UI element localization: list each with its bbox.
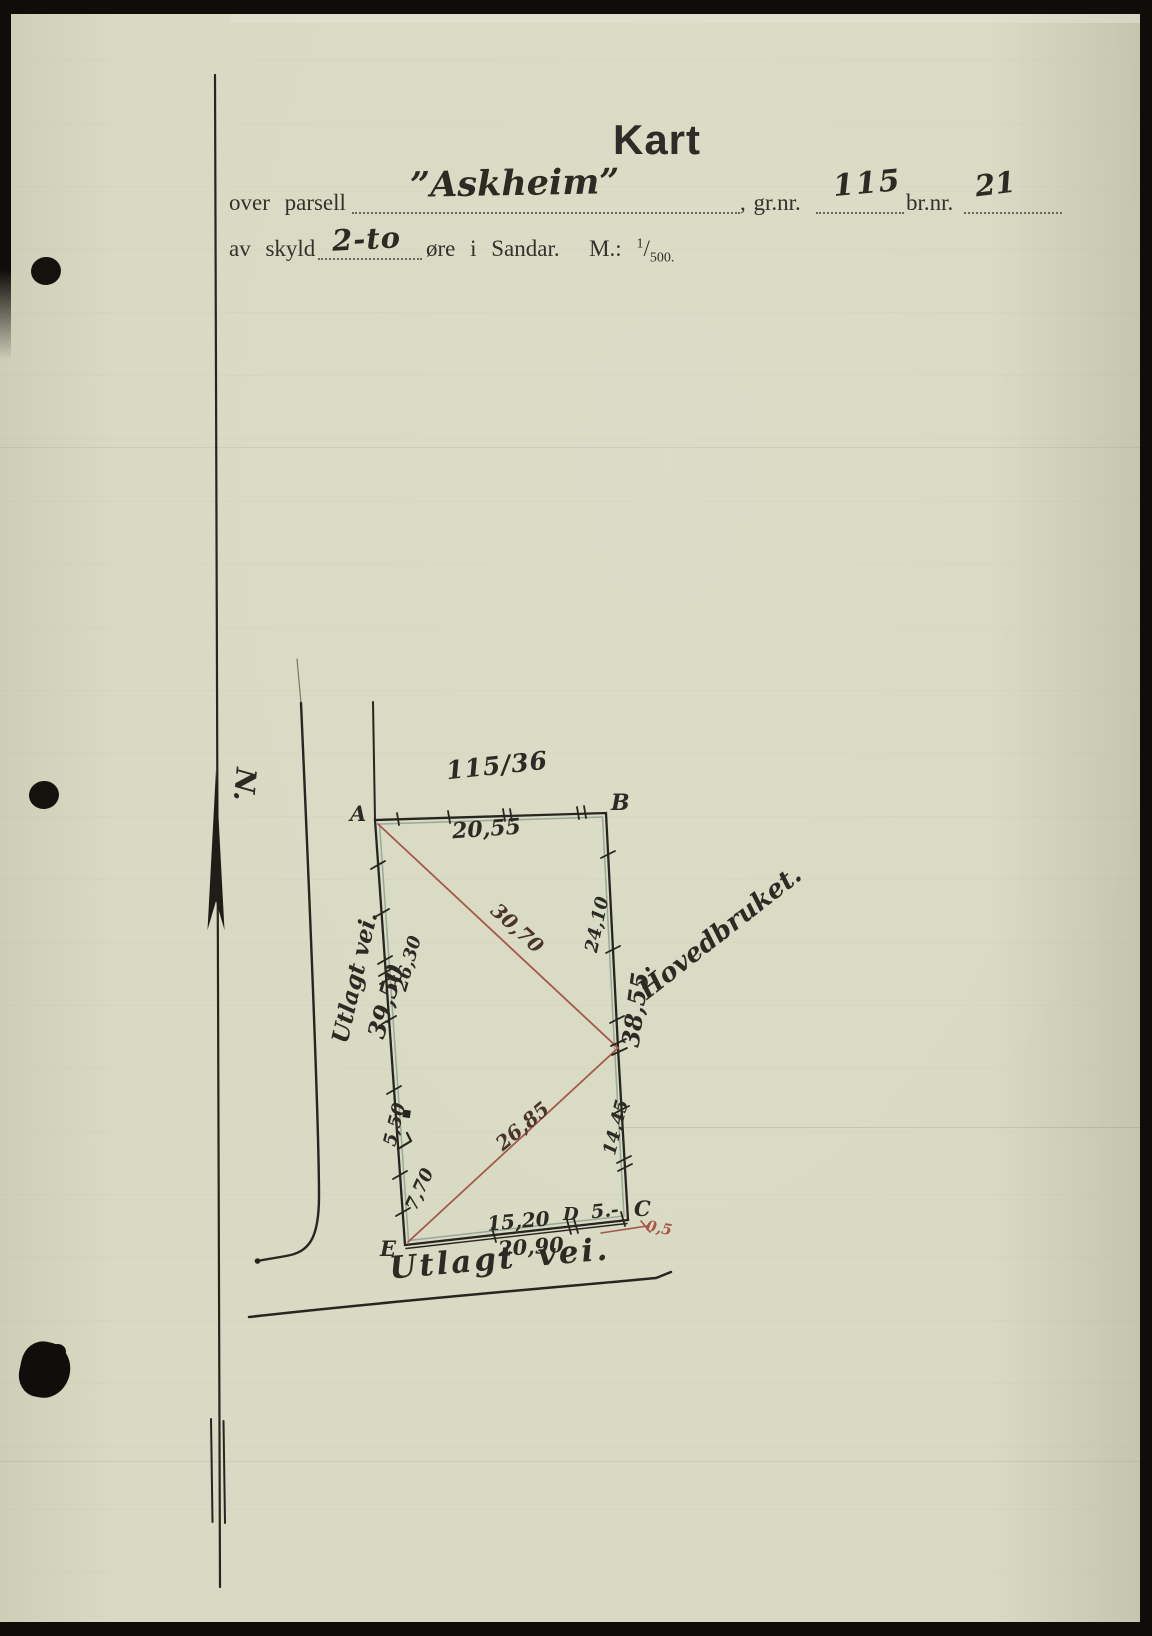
point-label-d: D	[563, 1204, 579, 1225]
scanned-survey-page: Kart over parsell ”Askheim” , gr.nr. 115…	[0, 0, 1152, 1636]
north-label: N.	[227, 766, 263, 802]
length-bottom-right: 5.-	[590, 1199, 620, 1224]
survey-map-drawing	[0, 0, 1152, 1636]
point-label-b: B	[611, 790, 630, 816]
length-top-edge: 20,55	[451, 814, 522, 845]
north-arrow-icon	[208, 770, 225, 930]
point-label-a: A	[350, 801, 366, 826]
